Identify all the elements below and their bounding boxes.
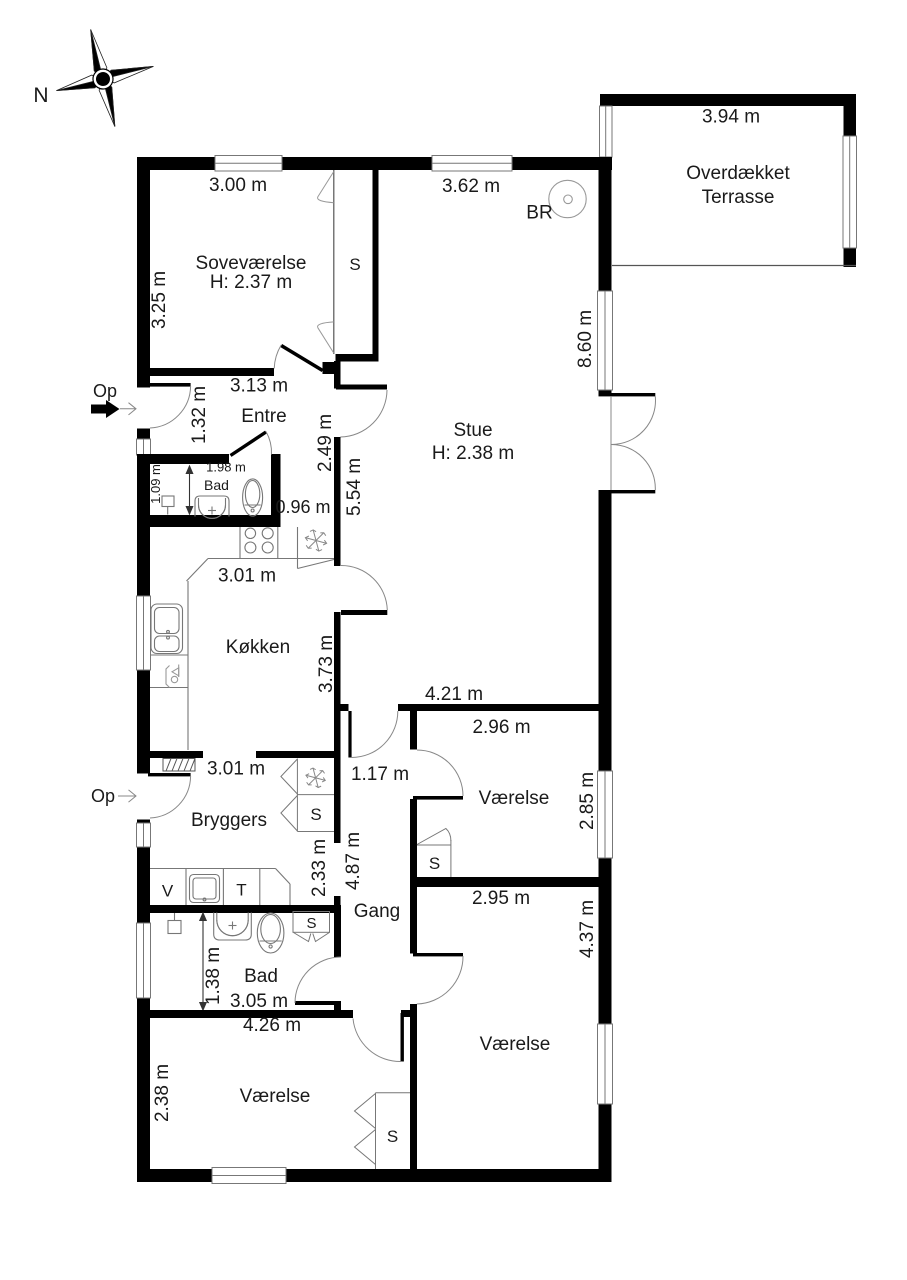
svg-text:1.38 m: 1.38 m (203, 947, 224, 1005)
svg-text:3.62 m: 3.62 m (442, 176, 500, 197)
svg-text:4.21 m: 4.21 m (425, 684, 483, 705)
svg-text:4.87 m: 4.87 m (343, 832, 364, 890)
svg-text:Terrasse: Terrasse (702, 187, 775, 208)
svg-text:3.01 m: 3.01 m (218, 566, 276, 587)
svg-text:4.26 m: 4.26 m (243, 1015, 301, 1036)
svg-text:1.98 m: 1.98 m (206, 460, 246, 475)
svg-text:2.33 m: 2.33 m (309, 839, 330, 897)
svg-text:5.54 m: 5.54 m (344, 458, 365, 516)
svg-text:1.09 m: 1.09 m (148, 464, 163, 504)
svg-text:Værelse: Værelse (479, 788, 550, 809)
svg-text:Bad: Bad (244, 966, 278, 987)
svg-text:S: S (310, 805, 321, 824)
svg-text:3.01 m: 3.01 m (207, 759, 265, 780)
svg-text:Bad: Bad (204, 477, 229, 493)
svg-text:2.49 m: 2.49 m (315, 414, 336, 472)
svg-text:3.05 m: 3.05 m (230, 991, 288, 1012)
svg-text:H: 2.37 m: H: 2.37 m (210, 272, 292, 293)
svg-text:3.00 m: 3.00 m (209, 175, 267, 196)
svg-text:3.73 m: 3.73 m (316, 635, 337, 693)
svg-text:Værelse: Værelse (240, 1086, 311, 1107)
svg-text:3.94 m: 3.94 m (702, 107, 760, 128)
svg-text:0.96 m: 0.96 m (275, 497, 330, 517)
svg-text:3.13 m: 3.13 m (230, 376, 288, 397)
svg-text:1.17 m: 1.17 m (351, 764, 409, 785)
svg-text:Soveværelse: Soveværelse (196, 253, 307, 274)
svg-text:S: S (349, 255, 360, 274)
svg-text:BR: BR (526, 203, 552, 224)
svg-text:3.25 m: 3.25 m (149, 271, 170, 329)
svg-text:Stue: Stue (453, 420, 492, 441)
svg-text:2.38 m: 2.38 m (152, 1064, 173, 1122)
svg-text:Op: Op (93, 381, 117, 401)
svg-text:Bryggers: Bryggers (191, 810, 267, 831)
svg-text:Entre: Entre (241, 406, 286, 427)
svg-text:N: N (33, 84, 48, 107)
svg-text:Op: Op (91, 786, 115, 806)
svg-text:2.96 m: 2.96 m (472, 717, 530, 738)
svg-text:1.32 m: 1.32 m (189, 386, 210, 444)
svg-text:V: V (162, 882, 174, 901)
svg-text:Overdækket: Overdækket (686, 163, 790, 184)
svg-text:H: 2.38 m: H: 2.38 m (432, 443, 514, 464)
svg-text:4.37 m: 4.37 m (577, 900, 598, 958)
svg-text:Værelse: Værelse (480, 1034, 551, 1055)
svg-text:2.95 m: 2.95 m (472, 888, 530, 909)
svg-text:S: S (429, 854, 440, 873)
svg-text:Køkken: Køkken (226, 637, 290, 658)
svg-text:S: S (387, 1127, 398, 1146)
svg-text:S: S (306, 915, 316, 932)
svg-text:8.60 m: 8.60 m (575, 310, 596, 368)
svg-text:Gang: Gang (354, 901, 400, 922)
svg-text:2.85 m: 2.85 m (577, 772, 598, 830)
svg-text:T: T (236, 881, 246, 900)
